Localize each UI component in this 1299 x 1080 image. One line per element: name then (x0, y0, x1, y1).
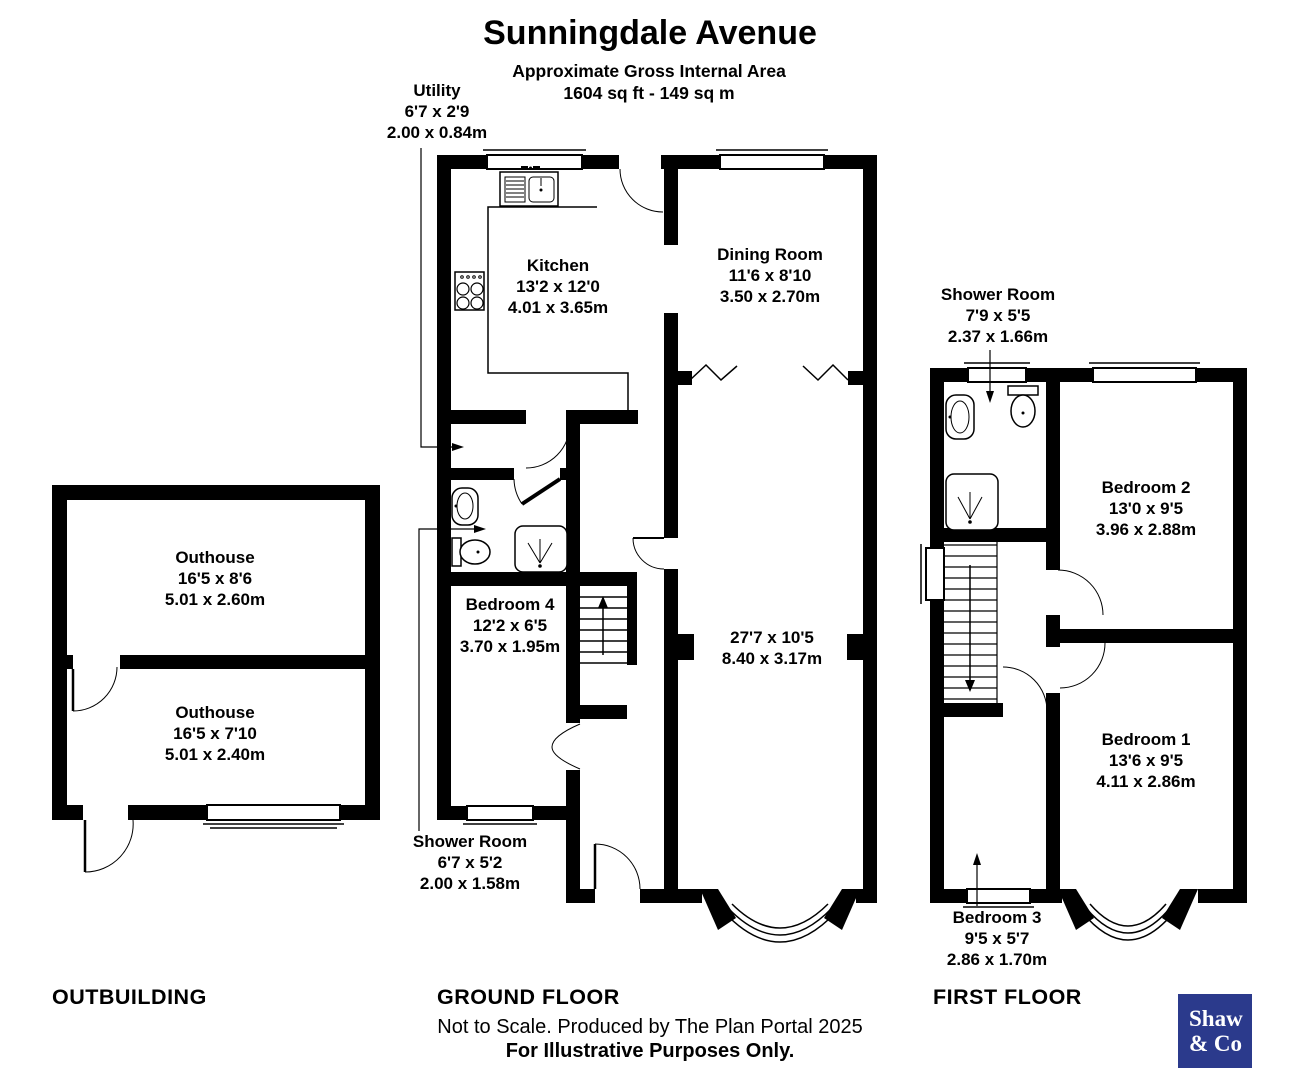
area-label: Approximate Gross Internal Area (512, 61, 786, 82)
bedroom3-window (963, 889, 1034, 907)
room-label-dining: Dining Room 11'6 x 8'10 3.50 x 2.70m (717, 244, 823, 307)
sink-icon (500, 166, 558, 206)
logo-line2: & Co (1189, 1031, 1252, 1056)
room-label-outhouse-a: Outhouse 16'5 x 8'6 5.01 x 2.60m (165, 547, 265, 610)
room-label-kitchen: Kitchen 13'2 x 12'0 4.01 x 3.65m (508, 255, 608, 318)
page-title: Sunningdale Avenue (483, 14, 817, 53)
room-label-ff-shower: Shower Room 7'9 x 5'5 2.37 x 1.66m (941, 284, 1055, 347)
section-label-outbuilding: OUTBUILDING (52, 985, 207, 1010)
room-label-bedroom1: Bedroom 1 13'6 x 9'5 4.11 x 2.86m (1096, 729, 1195, 792)
footer-disclaimer: Not to Scale. Produced by The Plan Porta… (437, 1016, 862, 1039)
first-floor-walls (930, 368, 1247, 903)
section-label-first-floor: FIRST FLOOR (933, 985, 1082, 1010)
room-label-gf-shower: Shower Room 6'7 x 5'2 2.00 x 1.58m (413, 831, 527, 894)
stairs-down-icon (944, 540, 997, 710)
ff-basin-icon (946, 395, 974, 439)
zigzag-opening (690, 365, 848, 380)
room-label-outhouse-b: Outhouse 16'5 x 7'10 5.01 x 2.40m (165, 702, 265, 765)
stairs-up-icon (580, 596, 627, 663)
gf-toilet-icon (452, 538, 490, 566)
logo-line1: Shaw (1189, 1006, 1252, 1031)
bay-window-first (1058, 889, 1198, 940)
room-label-utility: Utility 6'7 x 2'9 2.00 x 0.84m (387, 80, 487, 143)
footer-illustrative: For Illustrative Purposes Only. (506, 1040, 795, 1063)
shaw-co-logo: Shaw & Co (1178, 994, 1252, 1068)
first-floor-plan (921, 350, 1247, 940)
bedroom2-window (1089, 363, 1200, 382)
gf-shower-leader-arrow (419, 525, 486, 831)
room-label-living: 27'7 x 10'5 8.40 x 3.17m (722, 627, 822, 669)
outbuilding-plan (52, 485, 380, 872)
floorplan-page: Sunningdale Avenue Approximate Gross Int… (0, 0, 1299, 1080)
floorplan-drawing (0, 0, 1299, 1080)
area-value: 1604 sq ft - 149 sq m (563, 83, 734, 104)
bedroom4-window (463, 806, 537, 824)
room-label-bedroom2: Bedroom 2 13'0 x 9'5 3.96 x 2.88m (1096, 477, 1196, 540)
dining-window (716, 150, 828, 169)
gf-basin-icon (452, 488, 478, 525)
gf-shower-tray-icon (515, 526, 567, 572)
outbuilding-window (203, 805, 344, 828)
landing-side-window (921, 544, 944, 604)
room-label-bedroom3: Bedroom 3 9'5 x 5'7 2.86 x 1.70m (947, 907, 1047, 970)
ff-toilet-icon (1008, 386, 1038, 427)
outbuilding-door-arcs (73, 667, 133, 872)
hob-icon (455, 272, 484, 310)
bay-window-ground (700, 889, 860, 942)
ff-shower-window (964, 363, 1030, 382)
room-label-bedroom4: Bedroom 4 12'2 x 6'5 3.70 x 1.95m (460, 594, 560, 657)
outbuilding-walls (52, 485, 380, 820)
section-label-ground-floor: GROUND FLOOR (437, 985, 620, 1010)
ff-shower-tray-icon (946, 474, 998, 530)
